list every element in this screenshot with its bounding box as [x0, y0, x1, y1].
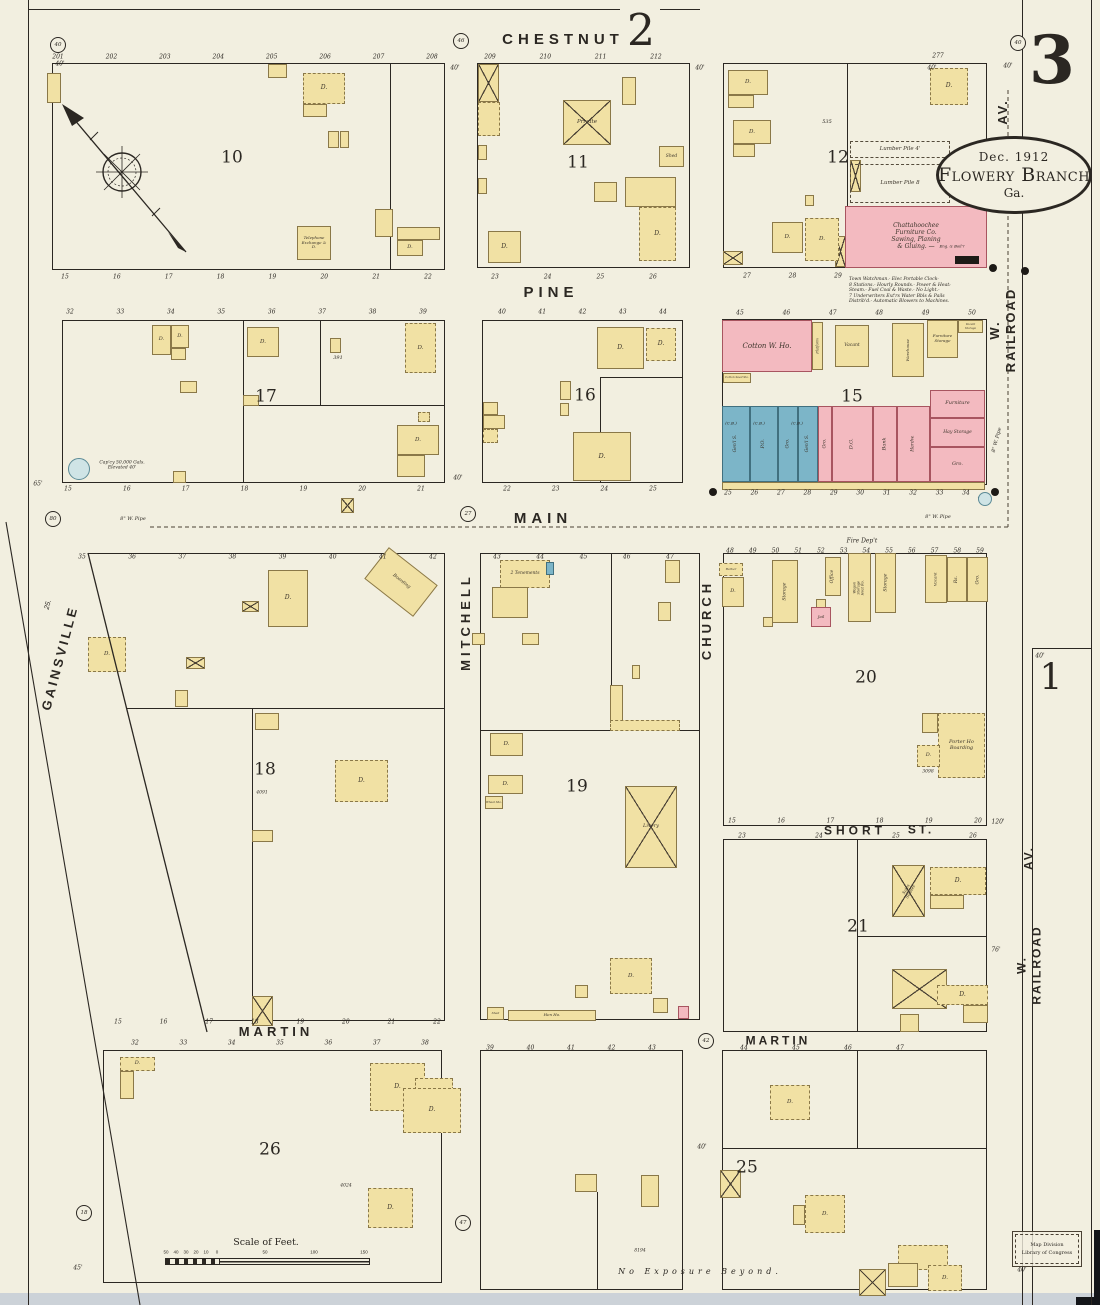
title-date: Dec. 1912	[979, 150, 1050, 164]
map-title-oval: Dec. 1912 Flowery Branch Ga.	[936, 136, 1092, 214]
compass-rose-icon	[62, 104, 186, 252]
stamp-border	[1015, 1234, 1079, 1264]
map-linework	[0, 0, 1100, 1305]
library-stamp: Map Division Library of Congress	[1012, 1231, 1082, 1267]
title-state: Ga.	[1004, 186, 1025, 200]
sanborn-map-sheet: Dec. 1912 Flowery Branch Ga. 3 2 1 Map D…	[0, 0, 1100, 1305]
title-city: Flowery Branch	[938, 164, 1090, 186]
